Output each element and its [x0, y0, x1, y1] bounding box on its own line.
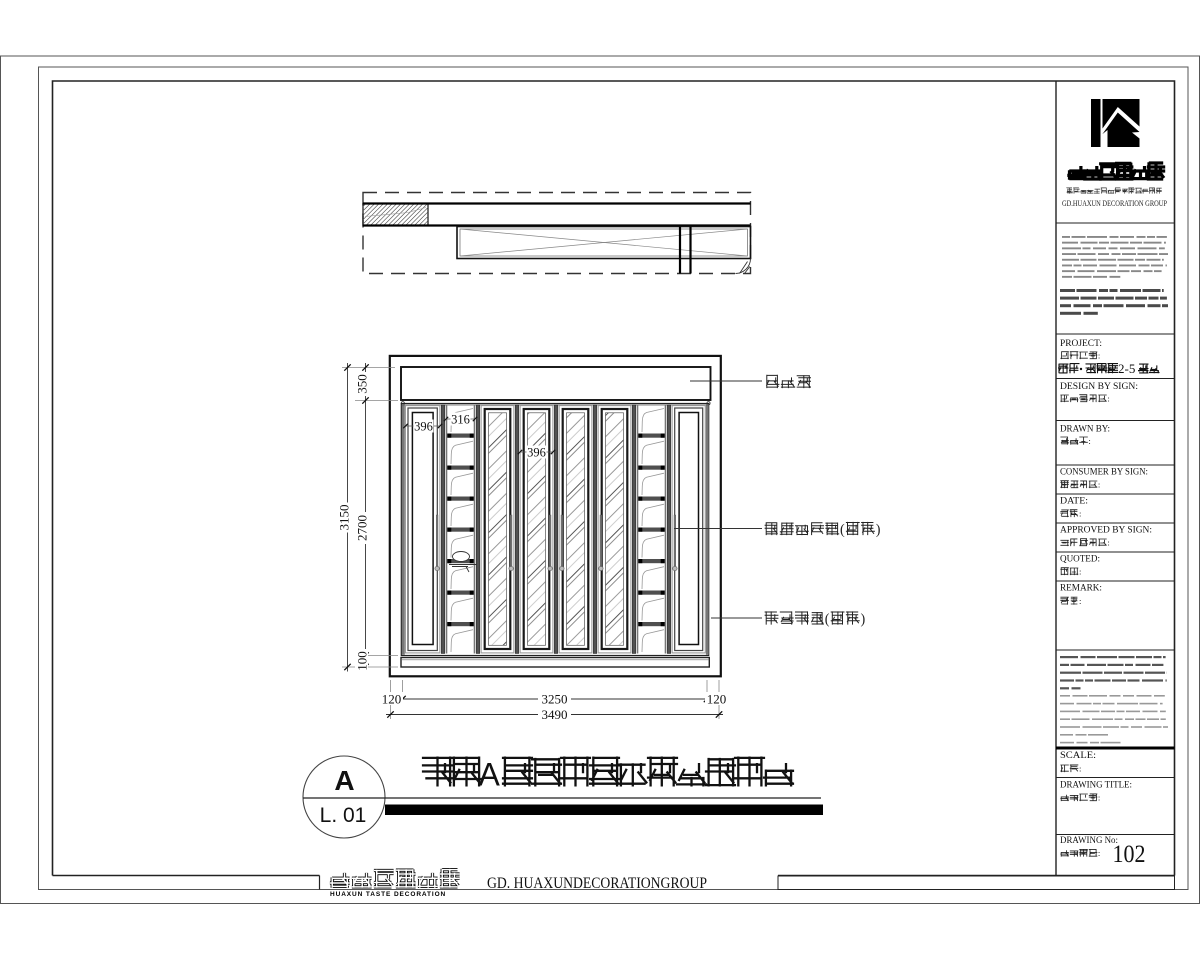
svg-text::: : — [1098, 848, 1100, 858]
svg-text:HUAXUN TASTE DECORATION: HUAXUN TASTE DECORATION — [330, 891, 446, 898]
svg-text:(: ( — [840, 522, 845, 538]
svg-text:L. 01: L. 01 — [320, 804, 367, 827]
svg-text:396: 396 — [527, 446, 546, 460]
svg-text:A: A — [479, 757, 501, 793]
svg-text:102: 102 — [1113, 839, 1146, 868]
svg-text:2700: 2700 — [355, 515, 370, 541]
svg-text::: : — [1098, 350, 1100, 360]
svg-text:QUOTED:: QUOTED: — [1060, 555, 1100, 565]
svg-text:120: 120 — [707, 692, 727, 707]
svg-text:100: 100 — [355, 651, 370, 671]
svg-text:DRAWN BY:: DRAWN BY: — [1060, 425, 1110, 435]
svg-text:3250: 3250 — [542, 692, 568, 707]
svg-text:350: 350 — [355, 374, 370, 394]
svg-text:DRAWING No:: DRAWING No: — [1060, 836, 1118, 846]
svg-text:GD. HUAXUNDECORATIONGROUP: GD. HUAXUNDECORATIONGROUP — [487, 875, 707, 892]
svg-text::: : — [1107, 393, 1109, 403]
svg-text:DATE:: DATE: — [1060, 497, 1088, 507]
svg-text:3150: 3150 — [337, 505, 352, 531]
svg-text:PROJECT:: PROJECT: — [1060, 339, 1102, 349]
svg-text::: : — [1098, 479, 1100, 489]
svg-text:3490: 3490 — [542, 707, 568, 722]
svg-text:DESIGN BY SIGN:: DESIGN BY SIGN: — [1060, 382, 1138, 392]
svg-text::: : — [1079, 566, 1081, 576]
svg-text:CONSUMER BY SIGN:: CONSUMER BY SIGN: — [1060, 468, 1148, 478]
svg-text::: : — [1107, 537, 1109, 547]
svg-text::: : — [1088, 436, 1090, 446]
svg-text:REMARK:: REMARK: — [1060, 584, 1102, 594]
svg-text:DRAWING TITLE:: DRAWING TITLE: — [1060, 781, 1132, 791]
svg-text:): ) — [876, 522, 881, 538]
svg-text::: : — [1098, 792, 1100, 802]
svg-text:GD.HUAXUN DECORATION GROUP: GD.HUAXUN DECORATION GROUP — [1062, 199, 1167, 208]
svg-text:): ) — [861, 611, 866, 627]
svg-text:316: 316 — [451, 413, 470, 427]
svg-text:A: A — [334, 765, 354, 796]
svg-text::: : — [1079, 508, 1081, 518]
svg-text:SCALE:: SCALE: — [1060, 751, 1096, 761]
svg-text::: : — [1079, 763, 1081, 773]
svg-text::: : — [1079, 596, 1081, 606]
svg-text:(: ( — [825, 611, 830, 627]
svg-text:396: 396 — [414, 420, 433, 434]
svg-text:2-5: 2-5 — [1118, 361, 1135, 376]
svg-text:APPROVED BY SIGN:: APPROVED BY SIGN: — [1060, 526, 1152, 536]
svg-text:120: 120 — [382, 692, 402, 707]
